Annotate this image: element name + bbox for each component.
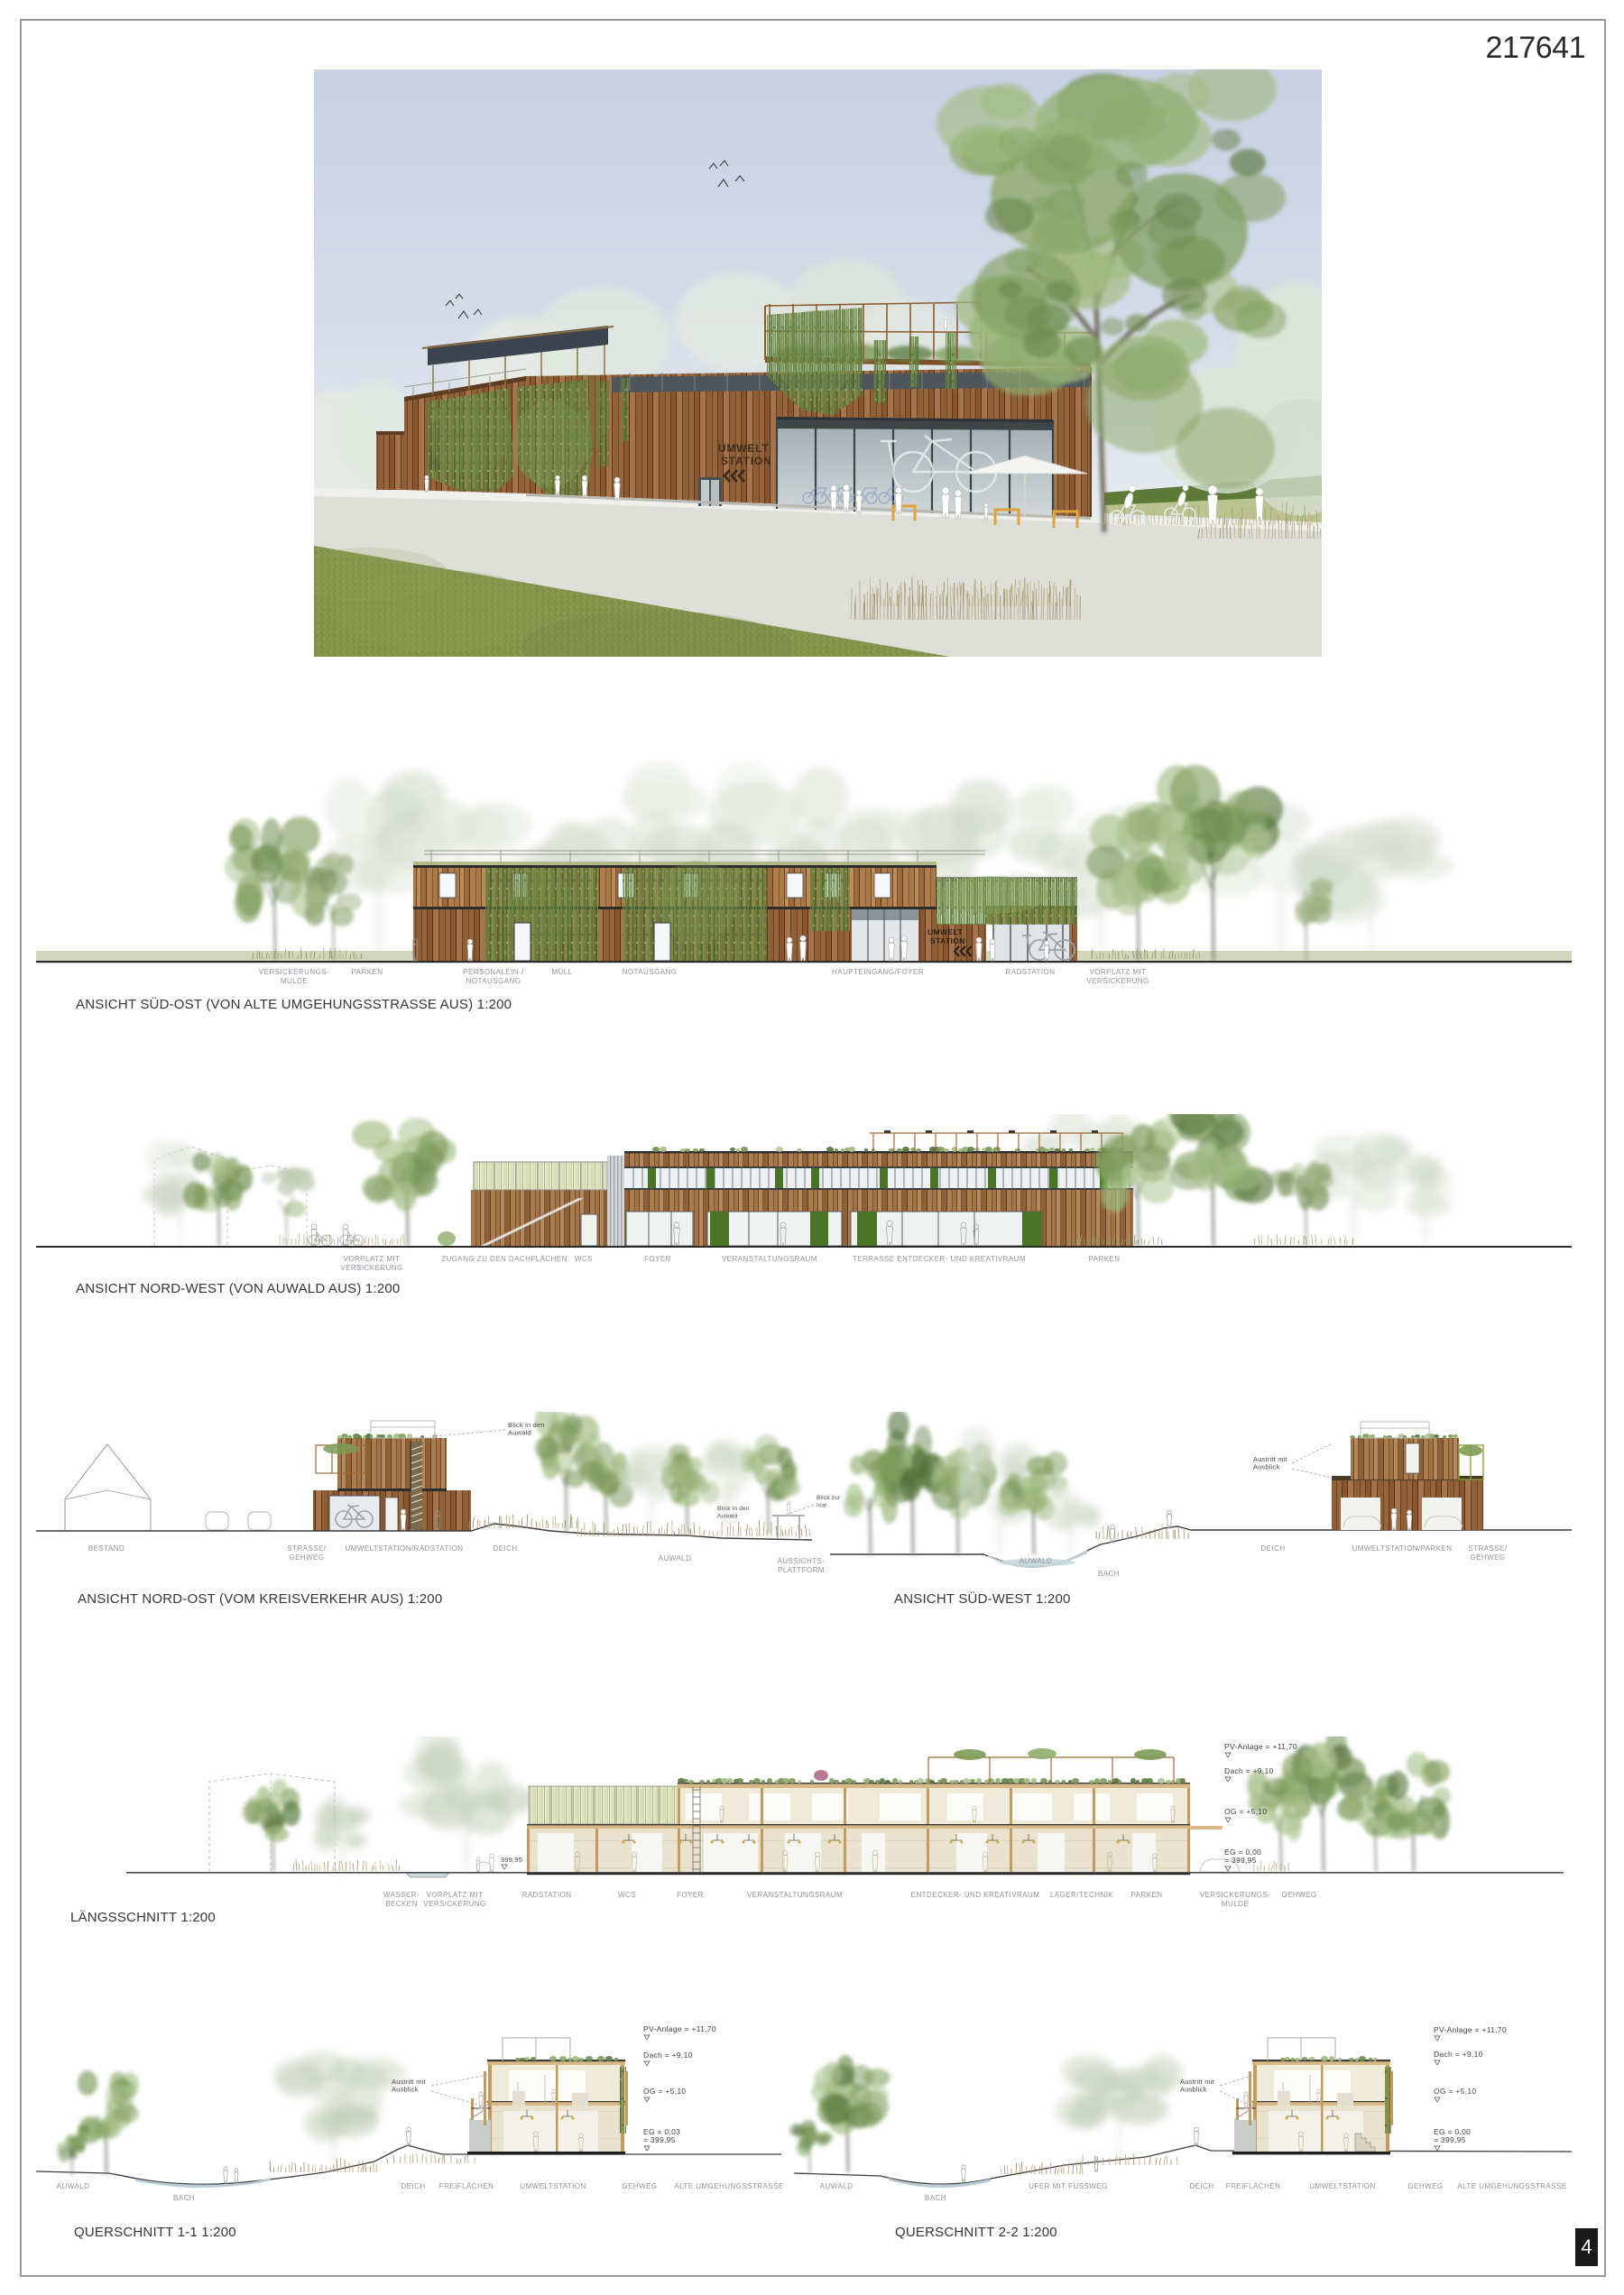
svg-text:Dach = +9,10: Dach = +9,10 xyxy=(1224,1766,1274,1775)
svg-text:OG = +5,10: OG = +5,10 xyxy=(1224,1807,1267,1816)
svg-text:PV-Anlage = +11,70: PV-Anlage = +11,70 xyxy=(643,2024,716,2033)
svg-text:Dach = +9,10: Dach = +9,10 xyxy=(1434,2050,1483,2059)
svg-text:Ausblick: Ausblick xyxy=(1180,2086,1207,2094)
svg-text:= 399,95: = 399,95 xyxy=(643,2135,676,2144)
svg-text:399,95: 399,95 xyxy=(501,1856,522,1864)
svg-text:Auwald: Auwald xyxy=(508,1429,531,1437)
svg-text:Ausblick: Ausblick xyxy=(1253,1463,1280,1471)
svg-text:Ausblick: Ausblick xyxy=(392,2086,419,2094)
svg-text:PV-Anlage = +11,70: PV-Anlage = +11,70 xyxy=(1434,2025,1507,2034)
svg-text:Auwald: Auwald xyxy=(717,1514,738,1520)
svg-text:STATION: STATION xyxy=(930,936,965,945)
svg-text:OG = +5,10: OG = +5,10 xyxy=(643,2087,686,2096)
svg-text:Dach = +9,10: Dach = +9,10 xyxy=(643,2051,693,2060)
svg-text:= 399,95: = 399,95 xyxy=(1224,1856,1257,1865)
svg-text:= 399,95: = 399,95 xyxy=(1434,2135,1466,2144)
svg-text:Blick in den: Blick in den xyxy=(717,1506,750,1512)
svg-text:Blick zur: Blick zur xyxy=(817,1495,841,1501)
svg-text:PV-Anlage = +11,70: PV-Anlage = +11,70 xyxy=(1224,1742,1297,1751)
svg-text:UMWELT: UMWELT xyxy=(718,442,770,455)
svg-text:Isar: Isar xyxy=(817,1503,827,1509)
svg-text:STATION: STATION xyxy=(721,455,771,467)
svg-text:OG = +5,10: OG = +5,10 xyxy=(1434,2087,1476,2096)
svg-text:UMWELT: UMWELT xyxy=(927,927,963,936)
